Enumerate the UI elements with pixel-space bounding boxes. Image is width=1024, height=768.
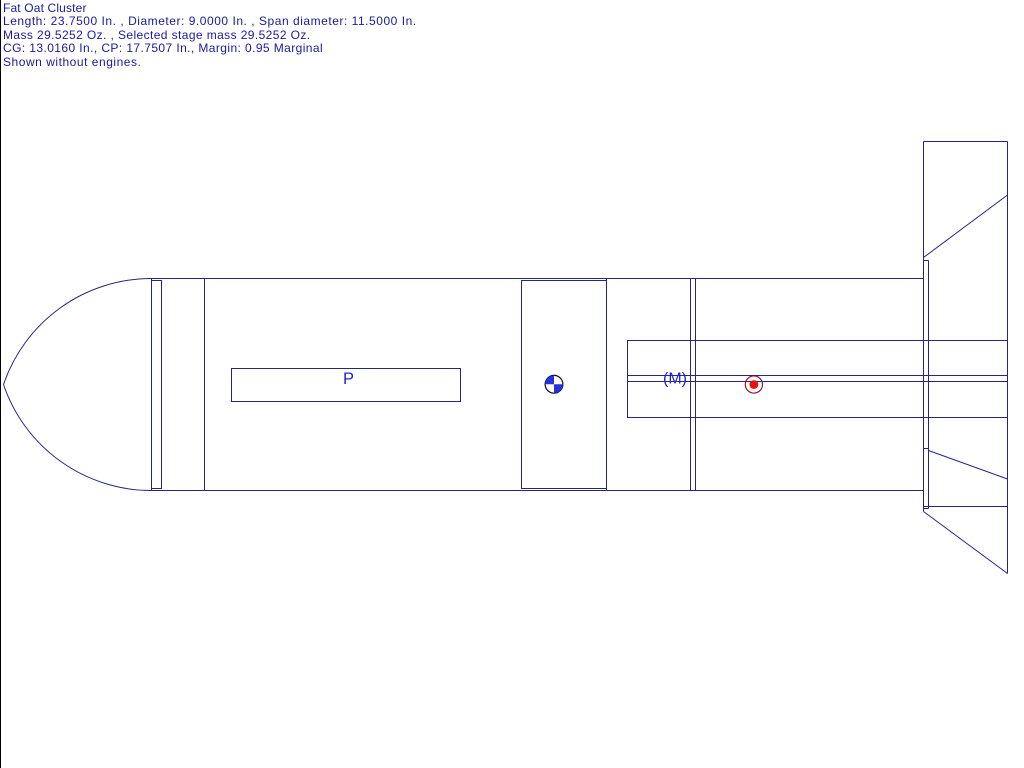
svg-text:(M): (M) xyxy=(663,371,687,388)
svg-text:P: P xyxy=(343,370,354,388)
